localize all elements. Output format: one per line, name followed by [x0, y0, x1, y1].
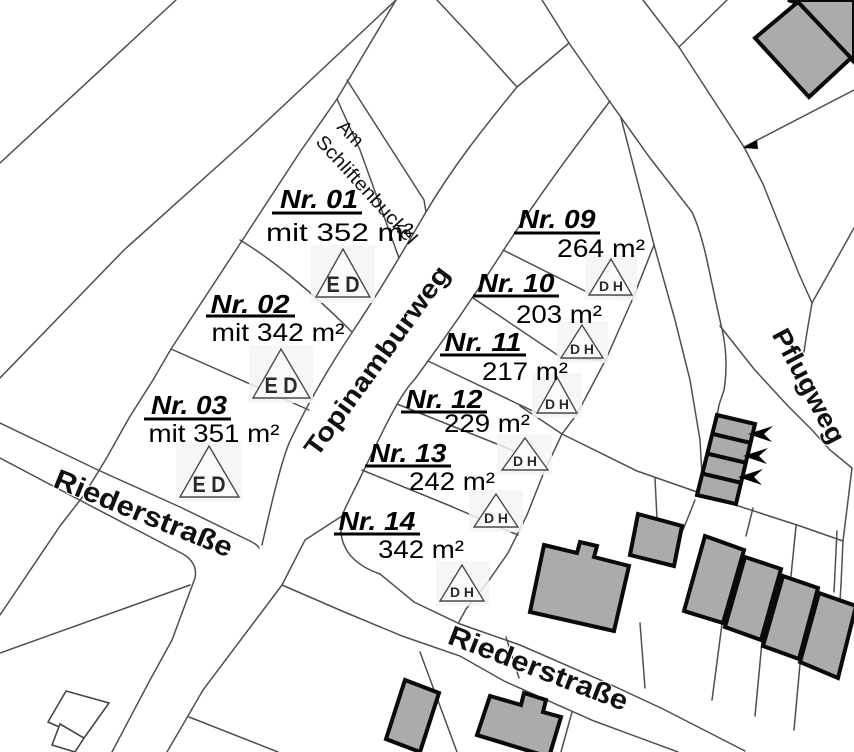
svg-text:mit 351 m²: mit 351 m² — [149, 420, 280, 448]
svg-text:E D: E D — [327, 272, 360, 297]
svg-text:Nr. 14: Nr. 14 — [339, 506, 417, 536]
svg-text:217 m²: 217 m² — [482, 358, 568, 386]
svg-text:E D: E D — [193, 472, 226, 497]
svg-text:342 m²: 342 m² — [378, 536, 464, 564]
svg-text:D H: D H — [450, 584, 474, 600]
svg-text:D H: D H — [599, 278, 623, 294]
svg-text:203 m²: 203 m² — [516, 301, 602, 329]
svg-text:Nr. 03: Nr. 03 — [151, 390, 228, 420]
svg-text:Nr. 09: Nr. 09 — [519, 204, 597, 234]
svg-text:Nr. 11: Nr. 11 — [445, 327, 522, 357]
svg-text:D H: D H — [570, 341, 594, 357]
svg-text:229 m²: 229 m² — [444, 410, 530, 438]
svg-text:D H: D H — [484, 510, 508, 526]
svg-text:264 m²: 264 m² — [557, 235, 645, 263]
svg-text:D H: D H — [545, 396, 569, 412]
svg-text:Nr. 01: Nr. 01 — [280, 184, 358, 214]
svg-text:Nr. 10: Nr. 10 — [478, 268, 556, 298]
svg-text:Nr. 13: Nr. 13 — [370, 438, 448, 468]
svg-text:242 m²: 242 m² — [409, 468, 495, 496]
svg-text:mit 342 m²: mit 342 m² — [212, 319, 345, 347]
svg-text:D H: D H — [513, 453, 537, 469]
svg-text:E D: E D — [265, 373, 298, 398]
